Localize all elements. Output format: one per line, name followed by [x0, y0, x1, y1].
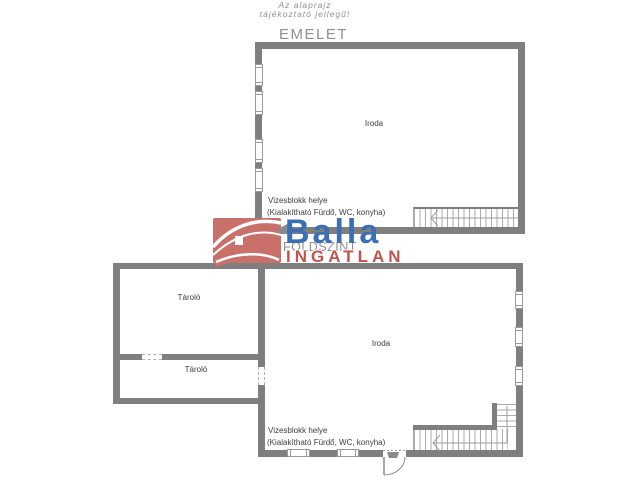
- upper-floor-plan: Iroda Vizesblokk helye (Kialakítható Für…: [255, 42, 525, 234]
- upper-note-line1: Vizesblokk helye: [268, 196, 327, 205]
- room-label-iroda-ground: Iroda: [372, 339, 390, 348]
- room-label-taro1: Tároló: [178, 293, 201, 302]
- watermark-brand-subtext: INGATLAN: [286, 248, 405, 266]
- wall-opening: [258, 367, 265, 385]
- window-symbol: [287, 449, 310, 457]
- window-symbol: [255, 91, 263, 115]
- ground-floor-plan: Tároló Tároló Iroda Vizesblokk helye (Ki…: [113, 263, 523, 457]
- disclaimer-note: Az alaprajz tájékoztató jellegű!: [230, 1, 380, 19]
- window-symbol: [515, 366, 523, 386]
- floorplan-canvas: Az alaprajz tájékoztató jellegű! EMELET …: [0, 0, 640, 480]
- wall-divider: [120, 354, 142, 360]
- stairs-walkline-ground: [410, 403, 520, 453]
- upper-floor-title: EMELET: [279, 26, 348, 43]
- wall-left: [113, 263, 120, 404]
- wall-divider: [162, 354, 265, 360]
- wall-center: [258, 385, 265, 457]
- window-symbol: [255, 139, 263, 163]
- wall-opening: [142, 354, 162, 360]
- room-label-iroda-upper: Iroda: [365, 119, 383, 128]
- balla-logo-icon: [213, 217, 295, 267]
- disclaimer-line2: tájékoztató jellegű!: [230, 10, 380, 19]
- ground-note-line2: (Kialakítható Fürdő, WC, konyha): [267, 438, 385, 447]
- watermark-brand-text: Balla: [285, 215, 381, 249]
- window-symbol: [337, 449, 359, 457]
- window-symbol: [255, 168, 263, 192]
- window-symbol: [515, 291, 523, 309]
- door-symbol: [383, 449, 406, 476]
- wall-top: [255, 42, 525, 49]
- room-label-taro2: Tároló: [185, 365, 208, 374]
- wall-bottom-left-section: [113, 398, 265, 404]
- stairs-walkline-upper: [413, 207, 518, 227]
- window-symbol: [515, 327, 523, 347]
- wall-center: [258, 263, 265, 367]
- ground-note-line1: Vizesblokk helye: [268, 426, 327, 435]
- window-symbol: [255, 64, 263, 86]
- wall-right: [518, 42, 525, 234]
